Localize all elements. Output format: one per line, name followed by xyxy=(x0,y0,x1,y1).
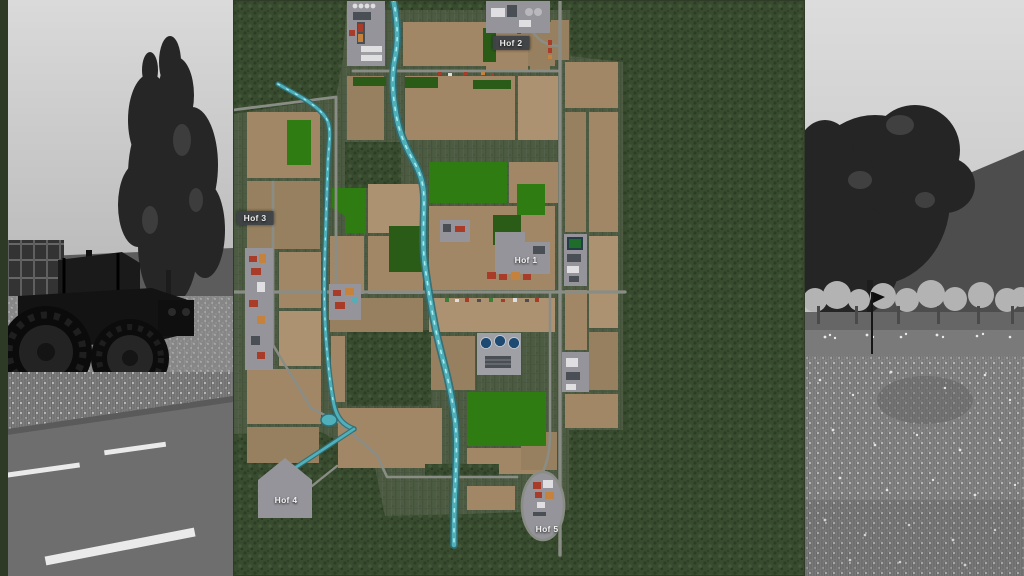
farm-map-svg xyxy=(233,0,805,576)
farmyard-small-center xyxy=(329,284,361,320)
background-photo-left xyxy=(0,0,233,576)
water-treatment-facility xyxy=(477,333,521,375)
farm-east-2 xyxy=(562,352,589,392)
background-photo-right xyxy=(805,0,1024,576)
meadow-foreground-shade xyxy=(805,500,1024,576)
tractor-scene xyxy=(0,0,233,576)
screenshot-stage: Hof 1Hof 2Hof 3Hof 4Hof 5 xyxy=(0,0,1024,576)
meadow-scene xyxy=(805,0,1024,576)
farm-map-overview: Hof 1Hof 2Hof 3Hof 4Hof 5 xyxy=(233,0,805,576)
left-edge-strip xyxy=(0,0,8,576)
facility-east xyxy=(564,234,587,286)
farmyard-hof-3 xyxy=(245,248,273,370)
farmyard-production-north xyxy=(347,0,385,66)
field-strip xyxy=(805,330,1024,358)
meadow-shadow xyxy=(877,376,973,424)
